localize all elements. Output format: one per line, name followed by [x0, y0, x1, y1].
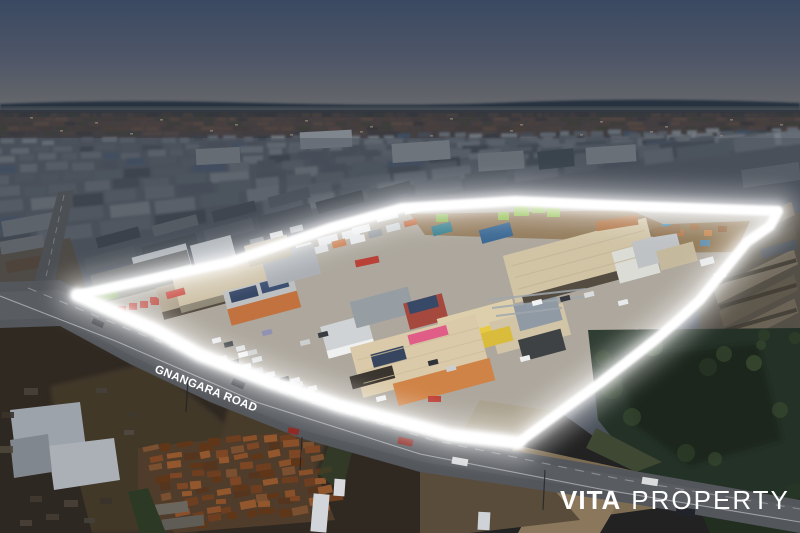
svg-text:VITAPROPERTY: VITAPROPERTY — [560, 485, 790, 515]
